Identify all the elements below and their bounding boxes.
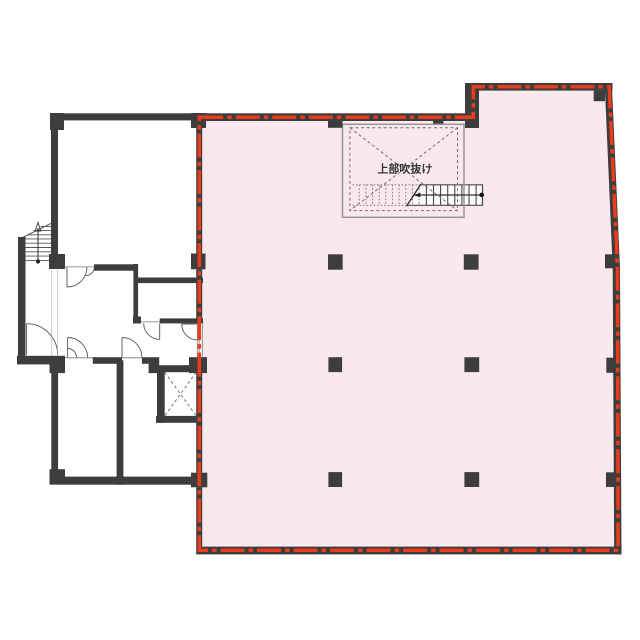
svg-text:上部吹抜け: 上部吹抜け — [378, 162, 433, 176]
